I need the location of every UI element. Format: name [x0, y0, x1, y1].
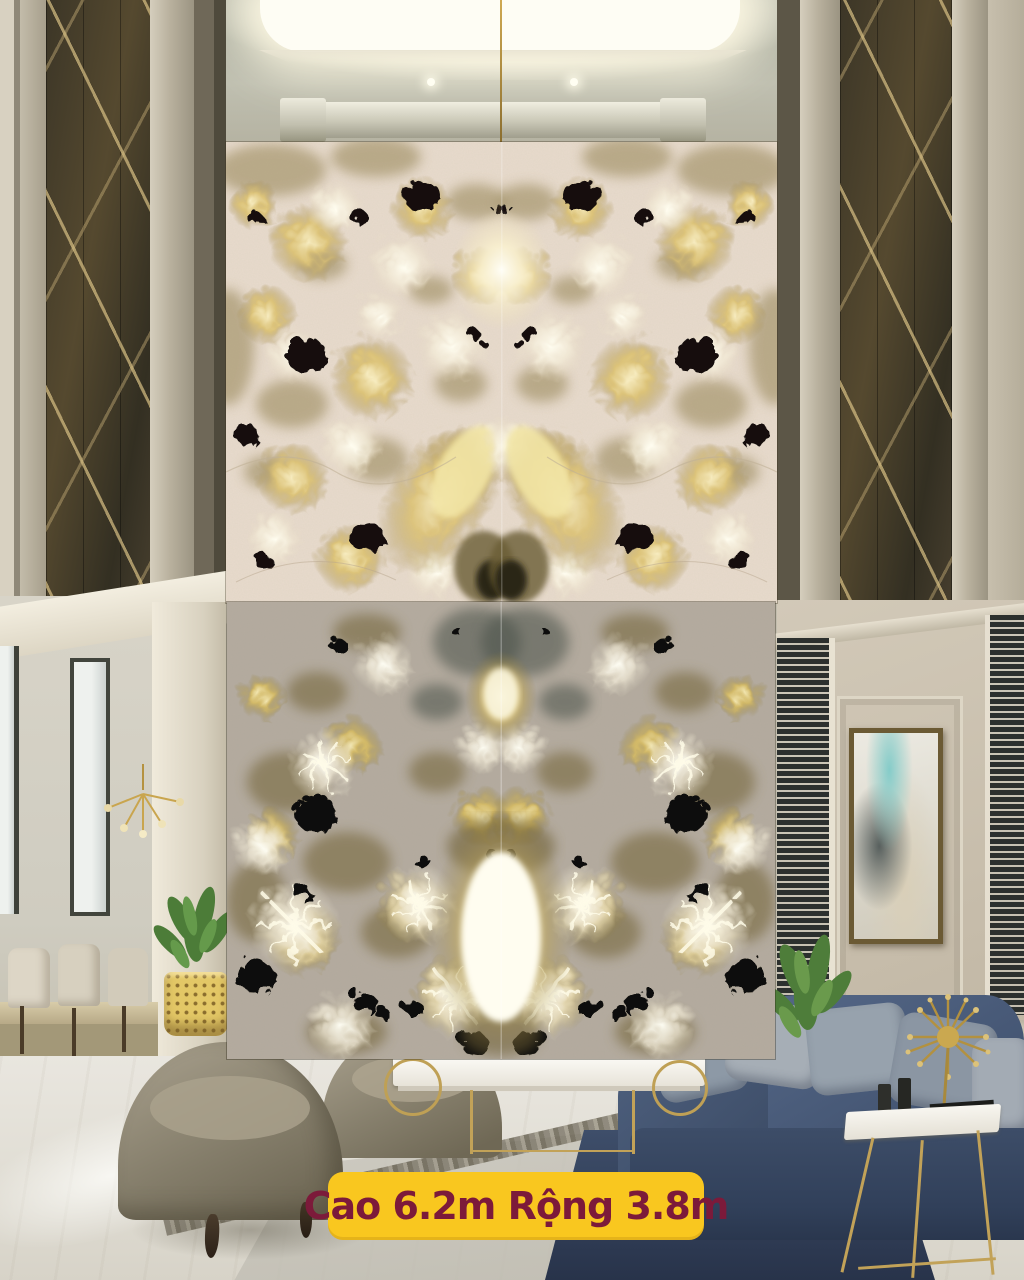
armchair-cushion	[150, 1076, 310, 1140]
left-pilaster-shadow	[194, 0, 214, 665]
crown-molding-cap	[660, 98, 706, 142]
left-mirror-panel	[46, 0, 150, 665]
stool-leg	[72, 1008, 76, 1058]
stool-leg	[122, 1006, 126, 1052]
left-pilaster	[150, 0, 194, 665]
right-pilaster	[800, 0, 840, 660]
cove-lip-molding	[238, 50, 768, 63]
crown-molding-cap	[280, 98, 326, 142]
right-mirror-panel	[840, 0, 952, 660]
left-frame-molding	[20, 0, 46, 665]
right-wall-gap	[777, 0, 800, 660]
table-ring-leg	[384, 1058, 442, 1116]
downlight	[427, 78, 435, 86]
left-wall-gap	[214, 0, 226, 665]
artwork-frame	[849, 728, 943, 944]
back-window	[0, 646, 19, 914]
stool-leg	[20, 1006, 24, 1054]
bar-stool	[108, 948, 148, 1006]
table-leg	[470, 1090, 473, 1154]
bar-stool	[58, 944, 100, 1006]
table-stretcher	[470, 1150, 635, 1152]
pendant-light	[100, 764, 186, 848]
promo-image: Cao 6.2m Rộng 3.8m	[0, 0, 1024, 1280]
window-blinds-right	[985, 615, 1024, 1015]
right-mirror-wall	[777, 0, 1024, 660]
slab-photo-lower	[227, 602, 775, 1059]
left-mirror-wall	[0, 0, 226, 665]
table-leg	[632, 1090, 635, 1154]
crown-molding	[288, 102, 704, 138]
slab-photo-upper	[226, 142, 777, 603]
chandelier-cable	[500, 0, 502, 144]
downlight	[570, 78, 578, 86]
left-frame-strip	[0, 0, 14, 665]
artwork-abstract-painting	[854, 733, 938, 939]
gold-drum-stool	[164, 972, 228, 1036]
bar-stool	[8, 948, 50, 1008]
right-corner-wall	[988, 0, 1024, 660]
right-pilaster	[952, 0, 988, 660]
banner-label: Cao 6.2m Rộng 3.8m	[304, 1184, 729, 1228]
size-banner: Cao 6.2m Rộng 3.8m	[328, 1172, 704, 1240]
table-ring-leg	[652, 1060, 708, 1116]
